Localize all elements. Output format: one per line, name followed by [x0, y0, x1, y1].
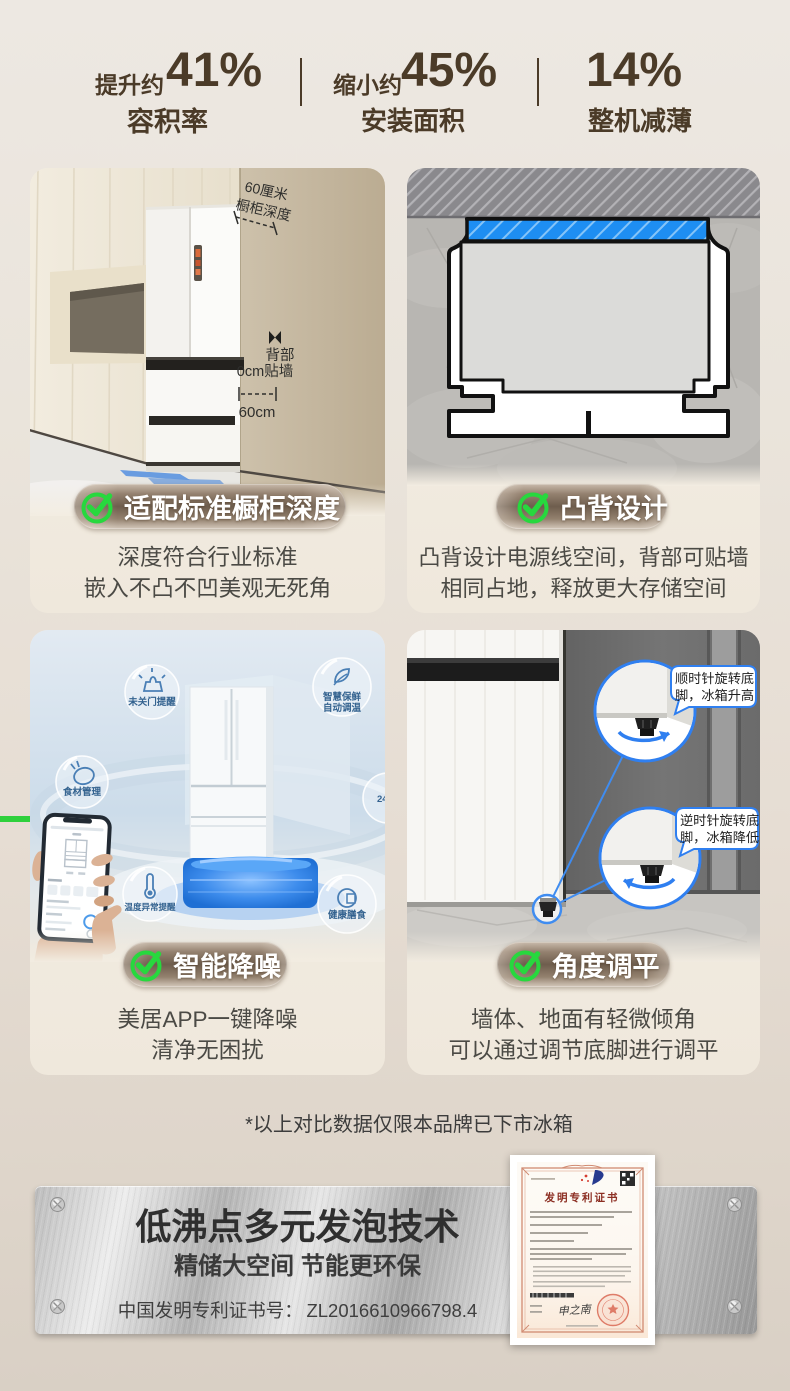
svg-text:逆时针旋转底: 逆时针旋转底 — [680, 813, 759, 828]
svg-text:未关门提醒: 未关门提醒 — [127, 696, 176, 708]
svg-text:24: 24 — [377, 794, 385, 805]
svg-text:智慧保鲜: 智慧保鲜 — [323, 691, 362, 703]
svg-text:食材管理: 食材管理 — [62, 786, 102, 798]
svg-text:温度异常提醒: 温度异常提醒 — [124, 902, 176, 912]
svg-text:健康膳食: 健康膳食 — [328, 909, 367, 921]
svg-text:脚，冰箱降低: 脚，冰箱降低 — [680, 830, 759, 845]
svg-text:申之南: 申之南 — [557, 1303, 593, 1318]
svg-text:发明专利证书: 发明专利证书 — [544, 1191, 620, 1204]
svg-text:自动调温: 自动调温 — [323, 702, 362, 714]
svg-text:60cm: 60cm — [239, 404, 276, 421]
svg-text:脚，冰箱升高: 脚，冰箱升高 — [675, 687, 754, 703]
svg-text:0cm贴墙: 0cm贴墙 — [237, 363, 293, 380]
svg-text:背部: 背部 — [266, 347, 295, 364]
svg-text:顺时针旋转底: 顺时针旋转底 — [675, 671, 754, 686]
